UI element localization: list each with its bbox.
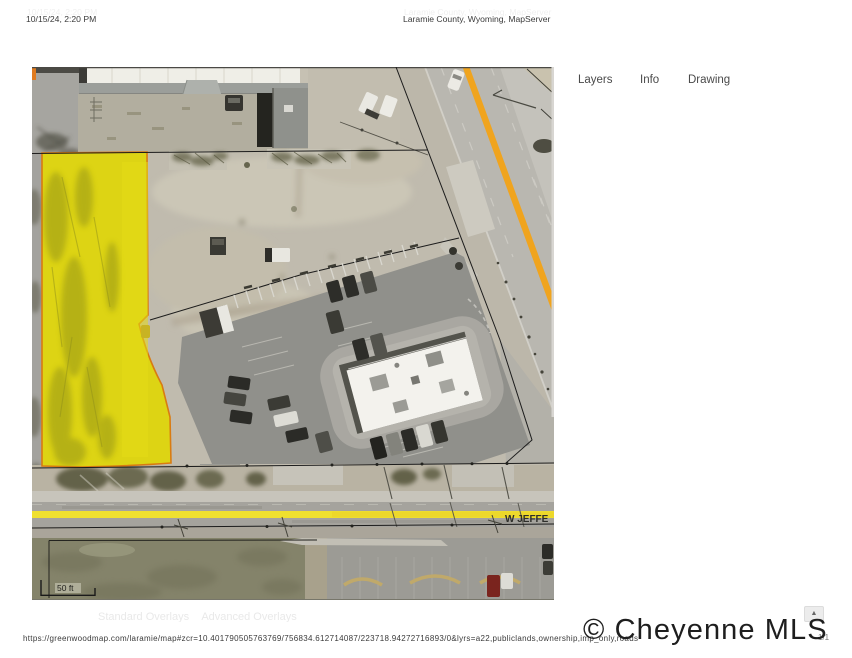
svg-text:W JEFFE: W JEFFE bbox=[505, 514, 549, 525]
svg-text:50 ft: 50 ft bbox=[57, 583, 74, 593]
